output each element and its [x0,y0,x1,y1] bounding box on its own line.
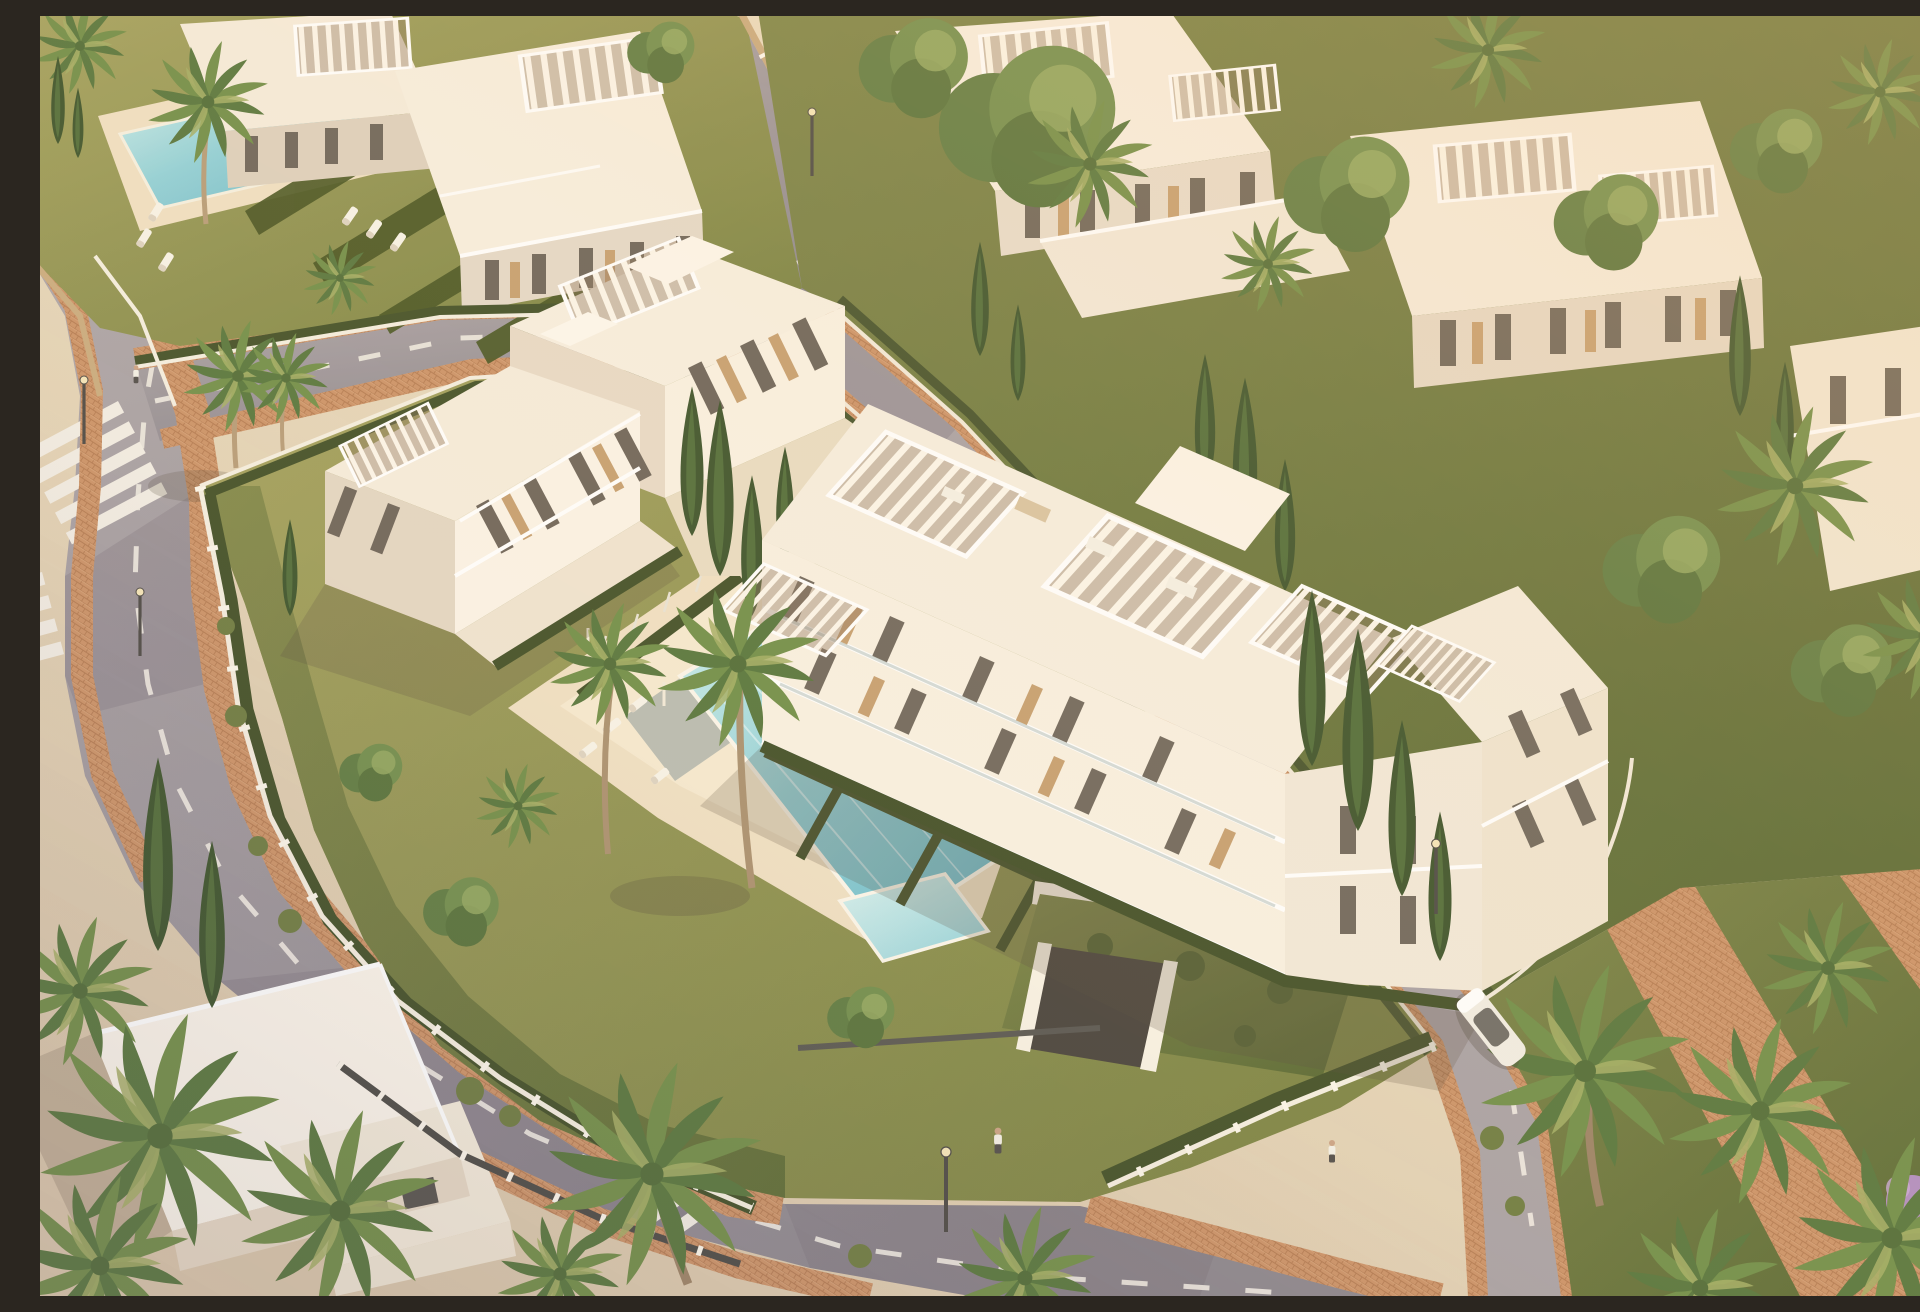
architectural-aerial-render: Aerial render of a modern white resident… [40,16,1920,1296]
haze-overlay [40,16,1920,1296]
